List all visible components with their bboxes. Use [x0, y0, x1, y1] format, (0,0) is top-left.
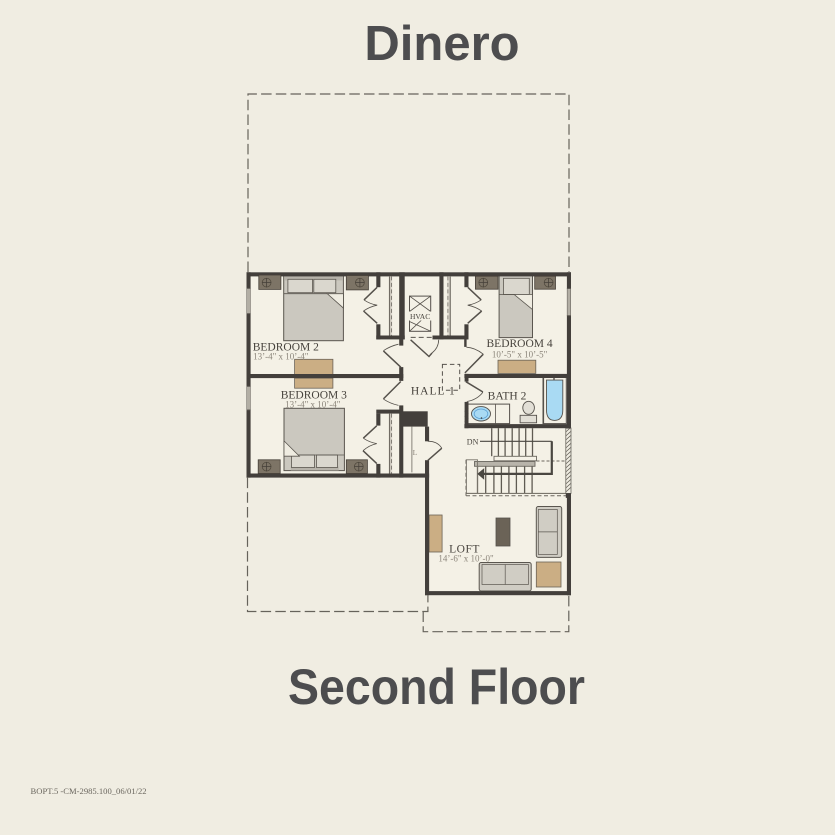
svg-text:BATH 2: BATH 2 — [488, 391, 527, 403]
svg-text:Second Floor: Second Floor — [288, 659, 585, 715]
svg-text:L: L — [413, 448, 418, 457]
svg-text:13’-4" x 10’-4": 13’-4" x 10’-4" — [285, 399, 341, 409]
svg-text:DN: DN — [467, 438, 479, 447]
svg-text:BEDROOM 4: BEDROOM 4 — [487, 338, 553, 350]
svg-text:13’-4" x 10’-4": 13’-4" x 10’-4" — [253, 351, 309, 361]
svg-text:10’-5" x 10’-5": 10’-5" x 10’-5" — [492, 349, 548, 359]
svg-text:14’-6" x 10’-0": 14’-6" x 10’-0" — [438, 554, 494, 564]
svg-text:HVAC: HVAC — [410, 312, 430, 321]
svg-text:BOPT.5 -CM-2985.100_06/01/22: BOPT.5 -CM-2985.100_06/01/22 — [31, 786, 147, 796]
svg-text:HALL 1: HALL 1 — [411, 385, 456, 397]
svg-text:Dinero: Dinero — [364, 17, 519, 71]
